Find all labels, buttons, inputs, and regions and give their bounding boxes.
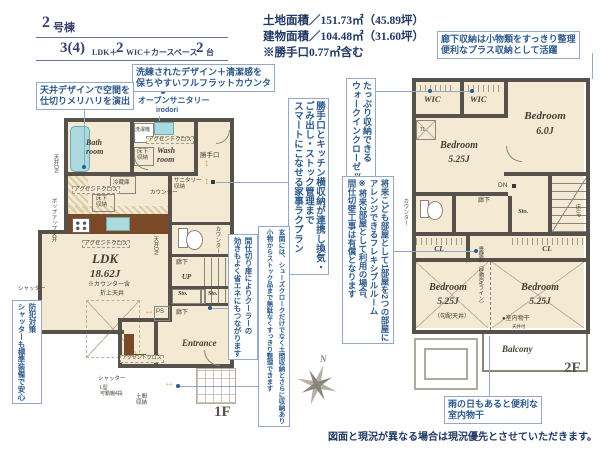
note-open-sanitary-sub: irodori [156,105,178,116]
l-shelf-label: L型 可動棚4段 [100,386,123,398]
note-security-shutter: 防犯対策 シャッターも標準装備で安心 [12,300,42,404]
stairs-up-label: UP [182,273,191,281]
coffered-ceiling-label: 折上天井 [100,291,124,298]
leader-line [212,308,228,309]
wall-segment [508,196,512,234]
leader-line [374,91,472,92]
wall-segment [460,82,464,114]
storage-label: Sto. [518,208,528,215]
wall-segment [412,330,590,334]
plan-seg4: WIC＋カースペース [126,47,198,58]
bedroom-size-label: 6.0J [506,126,584,138]
stairs-down-label: DN [498,182,507,189]
plan-seg6: 台 [206,47,214,58]
wall-segment [466,236,470,258]
leader-line [84,108,85,166]
wall-segment [172,254,230,257]
hallway-label: 廊下 [478,198,490,205]
toilet-bowl [427,201,443,220]
wall-segment [38,330,124,334]
washer-label: 洗濯機 [135,128,150,134]
note-hallway-storage: 廊下収納は小物類をすっきり整理 便利なプラス収納として活躍 [437,31,580,59]
wic-label: WIC [470,95,487,105]
leader-dot [428,89,432,93]
note-indoor-drying: 雨の日もあると便利な 室内物干 [444,396,542,424]
flow-arrow: ↕ [204,158,209,169]
ldk-note-label: ※カウンター含 [88,282,130,289]
top-light [416,120,436,140]
shutter-label: シャッター [18,286,46,292]
plan-seg5: 2 [196,40,204,57]
wall-segment [452,196,456,234]
closet-label: CL [412,245,466,254]
flow-arrow: ↔ [164,378,174,389]
pipe-space-label: PS [156,309,164,316]
underfloor-storage-label: 床下 収納 [96,196,107,209]
note-partition-door: 間仕切り扉によりクーラーの 効きもよく省エネにもつながります [228,234,258,360]
plan-seg2: LDK＋ [92,47,117,58]
wall-line-label: 垂壁無（壁想定ライン） [477,246,483,307]
counter-label: カウンター [214,226,220,254]
accent-cloth-label: アクセントクロス [146,136,194,144]
balcony-label: Balcony [502,344,533,354]
floor1-label: 1F [214,404,231,421]
building-number: 2 [42,14,50,32]
storage-label: Sto. [178,291,188,298]
stairs-down-dot [512,184,516,188]
ldk-size-label: 18.62J [90,268,120,281]
footer-disclaimer: 図面と現況が異なる場合は現況優先とさせていただきます。 [328,428,597,443]
shutter-label: シャッター [98,376,126,382]
note-flexible-room: 将来こども部屋として1部屋を2つの部屋に アレンジできるフレキシブルルーム ※将… [342,176,394,344]
underfloor-storage-label: 床下 収納 [137,149,148,162]
floorplan-flyer: 2 号棟 3(4) LDK＋ 2 WIC＋カースペース 2 台 土地面積／151… [0,0,600,450]
entrance-label: Entrance [182,338,217,348]
compass-north-label: N [320,354,327,364]
sloped-ceiling-label: （勾配天井） [412,314,492,321]
note-flat-counter: 洗練されたデザイン＋清潔感を 保ちやすいフルフラットカウンタ [132,64,275,92]
ceiling-down-label: 天井DN [52,154,58,173]
wic-label: WIC [424,95,441,105]
wash-room-label: Wash room [157,146,175,164]
wall-segment [194,118,198,176]
wash-basin [154,122,174,135]
ceiling-down-label: 天井DN [152,236,158,255]
wall-segment [506,258,590,262]
wall-segment [172,222,230,225]
storage-label: Sto. [208,291,218,298]
plan-seg3: 2 [116,40,124,57]
leader-line [216,182,288,183]
area-note: ※勝手口0.77㎡含む [263,44,364,60]
storage-cell [200,289,206,304]
note-wic: たっぷり収納できる ウォークインクローゼット [346,78,376,192]
hallway-label: 廊下 [176,260,188,267]
bedroom-size-label: 5.25J [414,155,504,166]
top-light-label: TL [420,128,426,134]
closet-label: CL [508,245,586,254]
stove [72,218,90,233]
floor2-label: 2F [564,360,581,377]
accent-cloth-label: アクセントクロス [72,186,120,194]
roof-outline [424,348,468,380]
compass-rose [294,362,340,408]
header-rule-2 [36,60,228,61]
bedroom-label: Bedroom [506,110,584,123]
kitchen-hatch [68,206,168,214]
bedroom-size-label: 5.25J [408,297,488,308]
leader-dot [470,89,474,93]
accent-cloth-label: アクセントクロス [82,240,130,248]
flow-arrow: ↔ [144,306,154,317]
sanitary-storage-label: サニタリー 収納 [174,178,202,191]
popup-ceiling-label: ポップアップ天井 [50,198,56,242]
bedroom-label: Bedroom [408,282,488,294]
wall-segment [586,78,590,334]
leader-dot [474,249,478,253]
accent-cloth-label: アクセントクロス [120,355,164,363]
bedroom-label: Bedroom [414,140,504,152]
note-entrance-storage: 玄関には、シューズクロークだけでなく土間収納とさらに収納あり 小物からストック品… [258,226,290,427]
floor-up-label: 床UP [574,204,580,217]
wall-segment [412,258,506,262]
counter-label: カウンター [402,198,408,226]
building-area: 建物面積／104.48㎡（31.60坪） [263,28,424,44]
stairs [552,178,586,232]
plan-seg1: 3(4) [60,40,85,57]
wall-segment [412,78,590,82]
indoor-drying-sub-label: 天井付 [512,324,526,329]
note-ceiling-design: 天井デザインで空間を 仕切りメリハリを演出 [36,82,134,110]
backdoor-label: 勝手口 [200,152,220,159]
leader-dot [82,165,86,169]
leader-line [180,386,258,387]
leader-dot [211,180,215,184]
flow-arrow: ← [464,256,473,266]
bedroom-label: Bedroom [496,282,584,294]
building-suffix: 号棟 [53,19,75,35]
wall-segment [504,172,586,176]
kitchen-sink [106,217,130,231]
leader-line [392,251,476,252]
counter-label: カウンター [150,190,178,196]
flow-arrow: ↕ [204,176,209,187]
wall-segment [412,192,508,196]
leader-line [489,336,490,396]
hallway-label: 廊下 [176,310,188,317]
bedroom-size-label: 5.25J [496,297,584,308]
ldk-label: LDK [92,252,118,267]
note-kitchen-plan: 勝手口とキッチン横収納が連携し換気・ ごみ出し・ストック管理まで スマートにこな… [288,98,329,275]
toilet-bowl [186,230,203,250]
leader-line [592,53,593,79]
wall-segment [412,232,590,236]
wall-segment [548,176,552,234]
wall-segment [412,114,508,118]
bath-room-label: Bath room [86,138,103,156]
header-rule-1 [36,37,228,38]
indoor-drying-label: ●室内物干 [502,316,530,323]
wall-segment [64,118,232,122]
land-area: 土地面積／151.73㎡（45.89坪） [263,12,424,28]
leader-dot [208,306,212,310]
leader-dot [176,384,180,388]
doma-storage-label: 土間 収納 [136,394,147,407]
